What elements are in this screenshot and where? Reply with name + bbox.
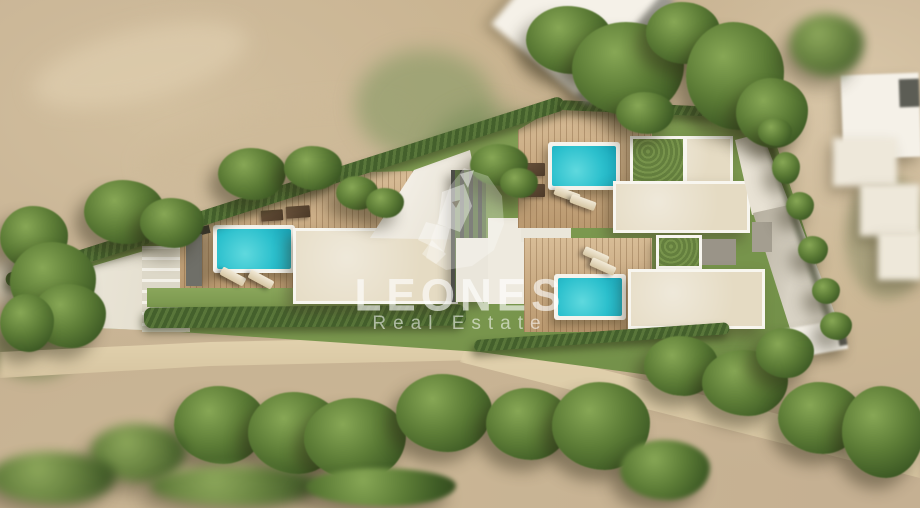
- green-roof-villa-southeast: [656, 235, 702, 269]
- tree: [842, 386, 920, 478]
- tree: [616, 92, 674, 134]
- neighbor-terrace: [860, 184, 920, 236]
- retaining-wall: [752, 222, 772, 252]
- shrub: [758, 118, 792, 146]
- tree: [306, 468, 456, 506]
- pool-villa-west: [213, 225, 295, 273]
- shrub: [812, 278, 840, 304]
- roof-villa-northeast-main: [613, 181, 750, 233]
- tree: [790, 14, 864, 76]
- tree: [140, 198, 204, 248]
- outdoor-mat: [261, 209, 284, 222]
- dirt-highlight: [25, 4, 255, 125]
- neighbor-terrace: [833, 138, 897, 186]
- shrub: [786, 192, 814, 220]
- outdoor-mat: [286, 205, 311, 219]
- tree: [366, 188, 404, 218]
- roof-villa-southeast: [628, 269, 765, 329]
- pool-villa-northeast: [548, 142, 620, 190]
- lion-head-icon: [402, 166, 514, 274]
- roof-villa-northeast: [630, 136, 733, 184]
- neighbor-building-topright-shadow: [899, 79, 920, 108]
- tree: [0, 452, 116, 504]
- tree: [756, 328, 814, 378]
- tree: [284, 146, 342, 190]
- tree: [150, 466, 320, 506]
- tree: [218, 148, 286, 200]
- aerial-render-scene: LEONES Real Estate: [0, 0, 920, 508]
- tree: [620, 440, 710, 500]
- watermark-tagline: Real Estate: [310, 313, 610, 335]
- pool-water: [217, 229, 291, 269]
- tree: [396, 374, 492, 452]
- shrub: [798, 236, 828, 264]
- green-roof-villa-northeast: [633, 139, 687, 181]
- neighbor-terrace: [878, 232, 920, 280]
- tree: [0, 294, 54, 352]
- concrete-pad: [702, 239, 736, 265]
- pool-water: [552, 146, 616, 186]
- shrub: [820, 312, 852, 340]
- shrub: [772, 152, 800, 184]
